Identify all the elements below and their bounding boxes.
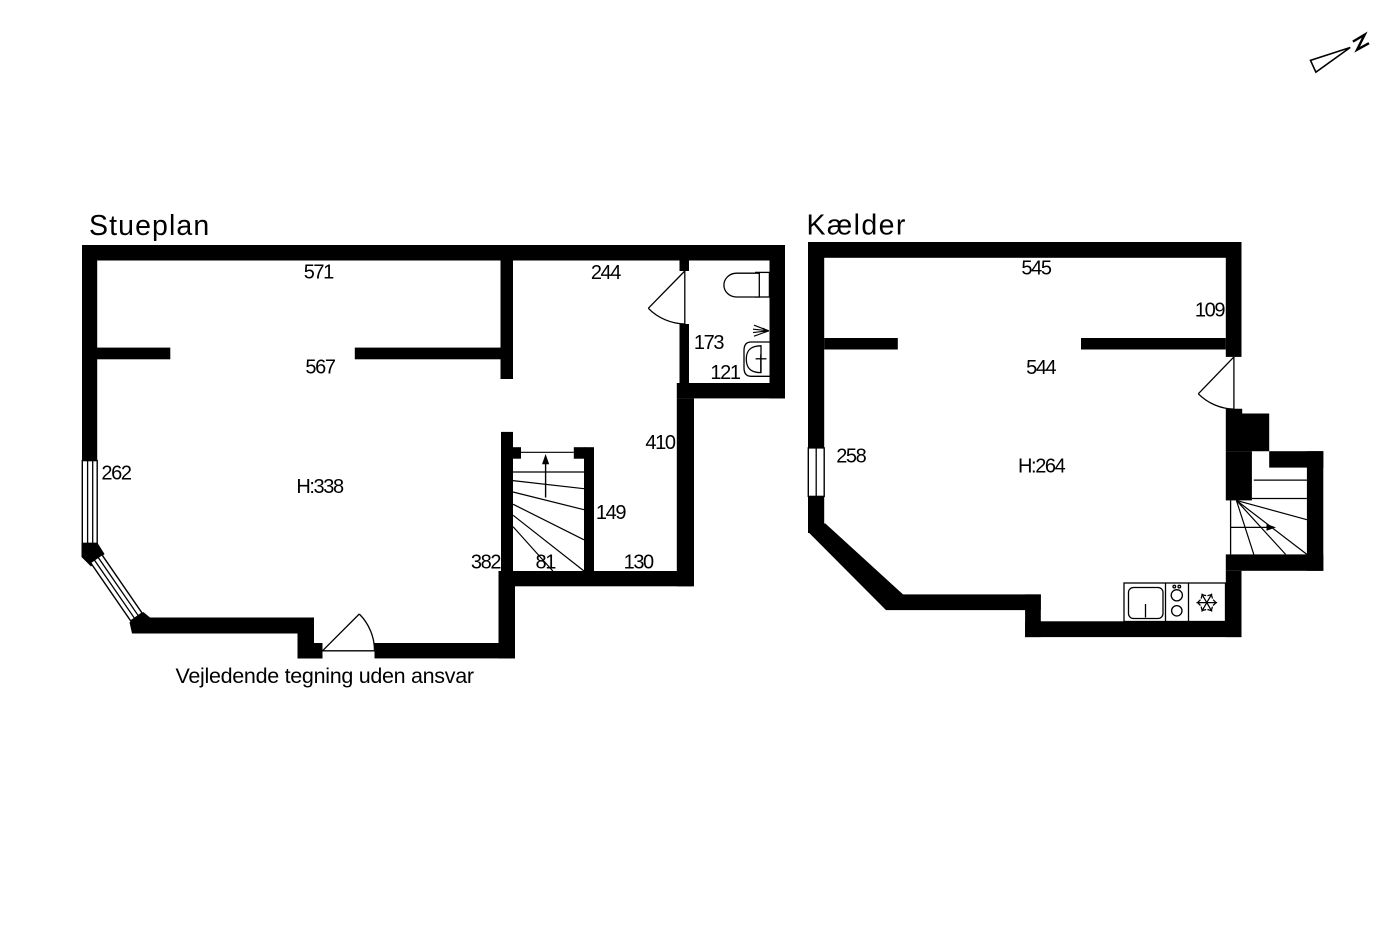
svg-text:258: 258 [836,446,866,468]
svg-text:109: 109 [1195,300,1225,322]
svg-text:H:264: H:264 [1018,456,1066,478]
svg-text:567: 567 [305,356,335,378]
svg-text:130: 130 [624,552,654,574]
svg-text:544: 544 [1026,357,1056,379]
svg-text:173: 173 [694,332,724,354]
svg-text:410: 410 [645,432,675,454]
svg-text:Kælder: Kælder [807,210,907,242]
svg-text:382: 382 [471,552,501,574]
svg-text:121: 121 [710,362,740,384]
svg-text:H:338: H:338 [296,476,344,498]
svg-text:571: 571 [304,261,334,283]
svg-text:149: 149 [596,502,626,524]
svg-text:81: 81 [535,552,556,574]
svg-text:244: 244 [591,262,621,284]
svg-text:Stueplan: Stueplan [89,210,210,242]
svg-text:545: 545 [1021,258,1051,280]
svg-text:262: 262 [101,463,131,485]
svg-text:Vejledende tegning uden ansvar: Vejledende tegning uden ansvar [176,664,474,688]
